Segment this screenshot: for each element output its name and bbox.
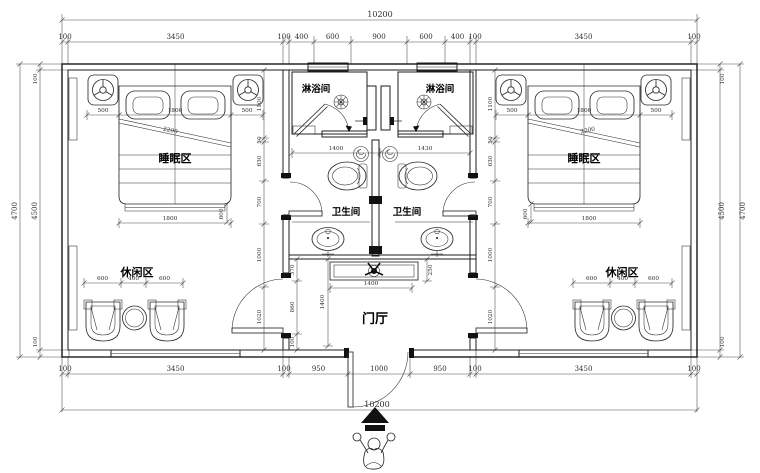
dim-console-d: 250 [428, 264, 434, 275]
dim-chainR-1: 50 [488, 136, 494, 144]
label-shower-right: 淋浴间 [426, 83, 455, 95]
foyer-console [330, 262, 418, 280]
ceiling-light-icon [641, 75, 671, 105]
dim-console-w: 1400 [364, 281, 379, 287]
dim-chainR-2: 630 [488, 155, 494, 166]
dim-top-10: 100 [687, 33, 700, 41]
central-core [289, 86, 476, 280]
dim-left-outer: 4700 [11, 202, 19, 220]
wall-grille [69, 246, 77, 330]
entry-direction-arrow-icon [361, 407, 389, 423]
dim-chainL-3: 700 [257, 196, 263, 207]
floor-plan-canvas: 10200 100 3450 100 400 600 900 600 400 1… [0, 0, 760, 473]
dim-bedR-diag: 2200 [580, 126, 596, 135]
dim-wc-right: 1430 [418, 146, 433, 152]
spiral-drain-icon [354, 147, 369, 162]
label-leisure-right: 休闲区 [605, 265, 639, 279]
dim-top-8: 100 [468, 33, 481, 41]
dim-overall-top: 10200 [367, 10, 392, 19]
label-leisure-left: 休闲区 [120, 265, 154, 279]
dim-bedR-foot: 1800 [582, 216, 597, 222]
label-wc-right: 卫生间 [393, 206, 422, 218]
dim-bedL-500a: 500 [97, 108, 108, 114]
dim-chainL-2: 630 [257, 155, 263, 166]
leisure-chairs-table [573, 300, 675, 341]
dim-right-wall-top: 100 [720, 73, 726, 84]
bottom-wall-features [69, 348, 691, 359]
dim-foyer-depth: 1400 [320, 294, 326, 309]
dim-bedL-foot: 1800 [163, 216, 178, 222]
leisure-chairs-table [84, 300, 186, 341]
dim-left-inner: 4500 [31, 202, 39, 220]
label-foyer: 门厅 [362, 311, 388, 327]
dim-top-2: 100 [277, 33, 290, 41]
dim-bot-2: 100 [277, 365, 290, 373]
dim-top-5: 900 [372, 33, 385, 41]
spiral-drain-icon [383, 147, 398, 162]
dim-bedR-foot-side: 600 [523, 208, 529, 219]
foyer-north-wall [289, 255, 476, 259]
dim-bot-6: 100 [468, 365, 481, 373]
dim-bot-5: 950 [433, 365, 446, 373]
dim-right-outer: 4700 [739, 202, 747, 220]
dim-top-4: 600 [326, 33, 339, 41]
dim-top-9: 3450 [575, 33, 593, 41]
room-entry-door-right [476, 279, 527, 333]
dim-top-7: 400 [451, 33, 464, 41]
entry-door-leaf [348, 352, 353, 407]
entry-opening [345, 348, 413, 359]
shower-partition-wall [367, 86, 376, 130]
wall-grille [682, 78, 690, 140]
dim-right-wall-bot: 100 [720, 336, 726, 347]
window-sill-hatch [240, 350, 283, 357]
dim-bot-7: 3450 [575, 365, 593, 373]
dim-bedR-500a: 500 [506, 108, 517, 114]
dim-chainL-4: 1000 [257, 247, 263, 262]
wall-grille [682, 246, 690, 330]
dim-right-inner: 4500 [718, 202, 726, 220]
person-entering-icon [353, 433, 395, 469]
label-sleep-left: 睡眠区 [159, 151, 192, 165]
dim-chainL-5: 1020 [257, 309, 263, 324]
dim-chainR-4: 1000 [488, 247, 494, 262]
dim-bot-8: 100 [687, 365, 700, 373]
floor-plan-drawing: 10200 100 3450 100 400 600 900 600 400 1… [0, 0, 760, 473]
dim-top-3: 400 [295, 33, 308, 41]
dim-leisL-0: 600 [97, 276, 108, 282]
dim-bedL-500b: 500 [241, 108, 252, 114]
dim-leisR-0: 600 [586, 276, 597, 282]
shower-partition-wall [381, 86, 390, 130]
dim-left-wall-top: 100 [33, 73, 39, 84]
dim-leisL-2: 600 [159, 276, 170, 282]
entry-door-swing [353, 352, 408, 407]
dim-chainR-0: 1100 [488, 96, 494, 111]
ceiling-light-icon [88, 75, 118, 105]
dim-bot-0: 100 [58, 365, 71, 373]
dim-bot-3: 950 [312, 365, 325, 373]
dim-foyer-chain-1: 860 [290, 301, 296, 312]
window-sill-hatch [648, 350, 691, 357]
ceiling-light-icon [496, 75, 526, 105]
dim-chainR-5: 1020 [488, 309, 494, 324]
label-sleep-right: 睡眠区 [568, 151, 601, 165]
dim-chainL-1: 50 [257, 136, 263, 144]
label-shower-left: 淋浴间 [302, 83, 331, 95]
window-sill-hatch [476, 350, 519, 357]
label-wc-left: 卫生间 [332, 206, 361, 218]
dim-leisR-2: 600 [648, 276, 659, 282]
dim-top-1: 3450 [167, 33, 185, 41]
dim-bedL-foot-side: 600 [219, 208, 225, 219]
window-sill-hatch [69, 350, 111, 357]
dim-left-wall-bot: 100 [33, 336, 39, 347]
dim-overall-bottom: 10200 [364, 400, 389, 409]
dim-bedR-500b: 500 [650, 108, 661, 114]
wall-grille [69, 78, 77, 140]
dim-wc-left: 1400 [329, 146, 344, 152]
dim-top-6: 600 [419, 33, 432, 41]
dim-bot-4: 1000 [370, 365, 388, 373]
dim-chainR-3: 700 [488, 196, 494, 207]
dim-bot-1: 3450 [167, 365, 185, 373]
dim-top-0: 100 [58, 33, 71, 41]
